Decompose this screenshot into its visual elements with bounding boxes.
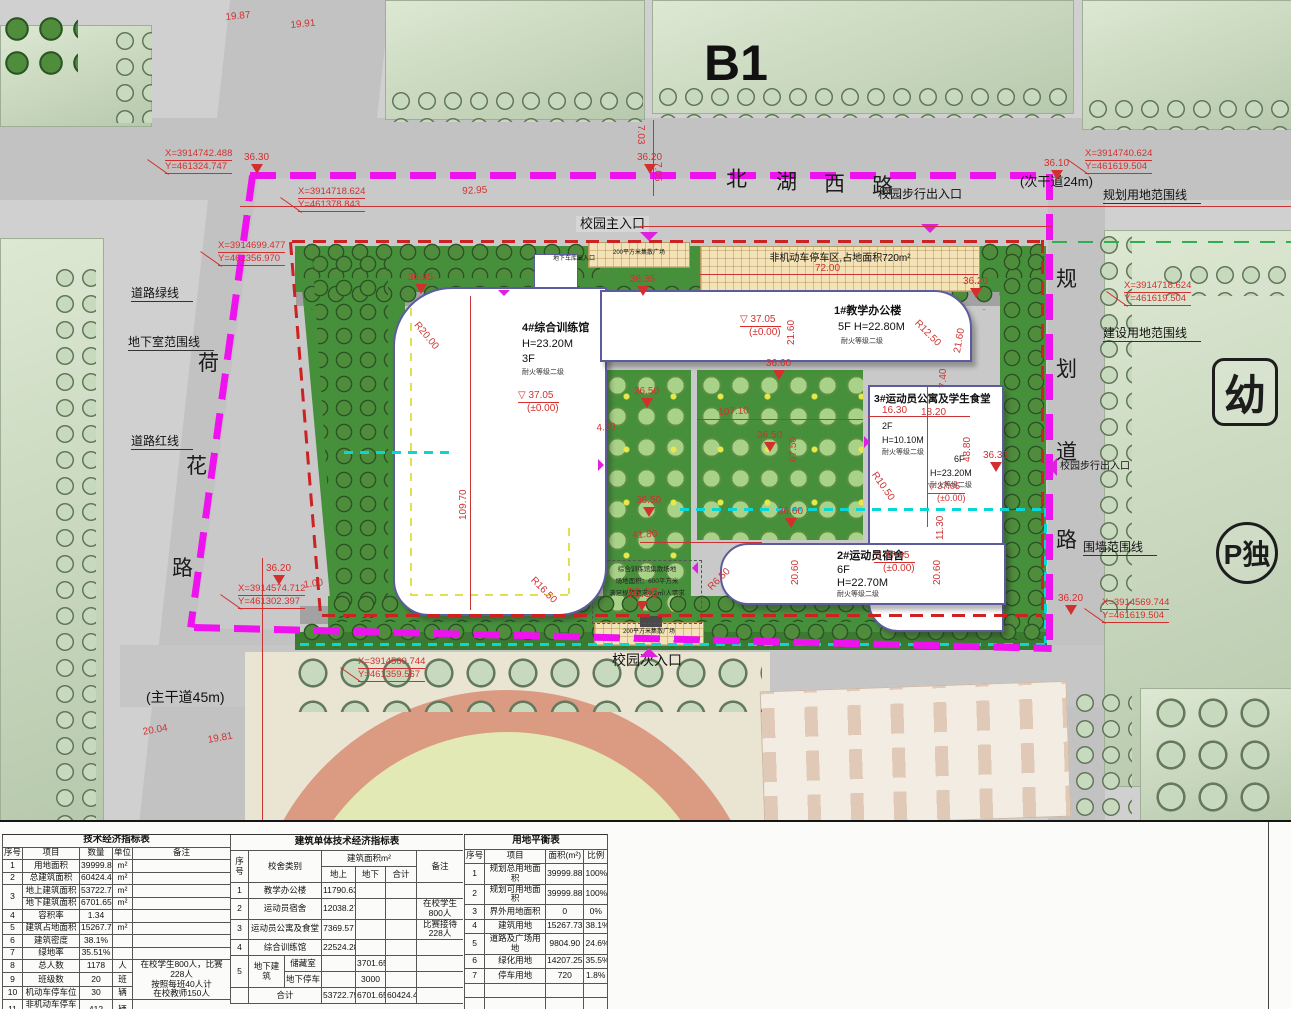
table-cell: 道路及广场用地: [485, 934, 546, 955]
dim-44: 20.60: [790, 560, 801, 585]
table-cell: [356, 883, 386, 899]
table-cell: 100%: [584, 864, 608, 885]
table-cell: 1178: [80, 960, 113, 973]
dim-26: 19.91: [290, 18, 316, 31]
table-cell: 地下建筑面积: [23, 897, 80, 910]
table-cell: 10: [3, 986, 23, 999]
table-cell: [417, 956, 464, 972]
rc-23: 道: [1056, 441, 1077, 464]
coordinate-7: X=3914569.744Y=461359.567: [358, 656, 425, 682]
table-cell: m²: [113, 897, 133, 910]
elev-57: 36.35: [630, 274, 655, 296]
table-cell: 校舍类别: [249, 851, 322, 883]
table-cell: 1: [231, 883, 249, 899]
tree-col: [1000, 250, 1044, 640]
garage-entrance-label: 地下车库出入口: [553, 256, 595, 263]
table-cell: 53722.75: [322, 988, 356, 1004]
table-cell: 20: [80, 973, 113, 986]
table-cell: [113, 947, 133, 960]
tree-row: [388, 88, 643, 122]
table-cell: 绿地率: [23, 947, 80, 960]
table-cell: 技术经济指标表: [3, 835, 231, 848]
table-cell: [417, 940, 464, 956]
table-cell: 地下建筑: [249, 956, 285, 988]
entr-76: [498, 290, 510, 302]
elev-55: 36.10: [1044, 158, 1069, 180]
planning-boundary-label: 规划用地范围线: [1103, 189, 1201, 204]
table-cell: 面积(m²): [546, 849, 584, 864]
table-cell: [546, 983, 584, 998]
dim-line-8: [653, 120, 654, 196]
table-cell: [386, 899, 417, 920]
table-cell: 合计: [249, 988, 322, 1004]
rc-18: 荷: [198, 352, 219, 375]
assembly-line2: 场地面积：600平方米: [593, 575, 701, 585]
table-cell: 地下: [356, 867, 386, 883]
tree-col: [52, 265, 96, 820]
entr-78: [686, 562, 698, 574]
table-cell: 3000: [356, 972, 386, 988]
dim-42: 48.80: [962, 437, 973, 462]
table-tech-indicators-table: 技术经济指标表序号项目数量单位备注1用地面积39999.88m²2总建筑面积60…: [2, 834, 230, 1009]
tree-col: [1072, 690, 1132, 820]
dim-31: 109.70: [458, 489, 469, 520]
table-cell: 5: [465, 934, 485, 955]
plaza-top-label: 200平方米集散广场: [613, 250, 665, 257]
table-cell: 7: [3, 947, 23, 960]
table-cell: [133, 897, 231, 910]
table-cell: 在校学生800人，比赛228人 按照每班40人计 在校教师150人: [133, 960, 231, 1000]
b3-6f-height: H=23.20M: [930, 468, 972, 478]
table-cell: 35.51%: [80, 947, 113, 960]
table-cell: [133, 860, 231, 873]
secondary-entrance-arrow: [640, 648, 658, 657]
table-cell: 用地面积: [23, 860, 80, 873]
dim-37: 21.60: [786, 320, 797, 345]
table-cell: 序号: [465, 849, 485, 864]
table-cell: [133, 1000, 231, 1009]
dim-40: 16.30: [882, 405, 907, 416]
table-cell: 2: [3, 872, 23, 885]
table-cell: 6: [465, 954, 485, 969]
tree-cluster: [0, 12, 78, 82]
entr-79: [598, 459, 610, 471]
rc-20: 路: [172, 557, 193, 580]
table-cell: 建筑用地: [485, 919, 546, 934]
tree-row: [112, 28, 152, 123]
table-cell: [485, 983, 546, 998]
table-cell: 5: [3, 922, 23, 935]
table-cell: 1.8%: [584, 969, 608, 984]
table-cell: 总建筑面积: [23, 872, 80, 885]
table-cell: 60424.40: [386, 988, 417, 1004]
coordinate-5: X=3914718.624Y=461619.504: [1124, 280, 1191, 306]
table-cell: 2: [465, 884, 485, 905]
parking-island-zone: P独: [1216, 522, 1278, 584]
table-cell: [322, 956, 356, 972]
elev-53: 36.30: [244, 152, 269, 174]
table-cell: [386, 940, 417, 956]
b1-spec: 5F H=22.80M: [838, 321, 905, 334]
table-cell: 53722.75: [80, 885, 113, 898]
table-cell: 容积率: [23, 910, 80, 923]
table-cell: [465, 998, 485, 1009]
table-cell: 建筑密度: [23, 935, 80, 948]
table-cell: [133, 872, 231, 885]
table-cell: 7: [465, 969, 485, 984]
table-land-balance: 用地平衡表序号项目面积(m²)比例1规划总用地面积39999.88100%2规划…: [464, 834, 608, 1009]
dim-line-6: [640, 226, 1052, 227]
rc-21: 规: [1056, 268, 1077, 291]
coordinate-1: X=3914718.624Y=461378.843: [298, 186, 365, 212]
table-cell: m²: [113, 885, 133, 898]
table-cell: [231, 988, 249, 1004]
table-cell: 2: [231, 899, 249, 920]
benchmark-b2: ▽ 37.05(±0.00): [874, 550, 915, 574]
coordinate-4: X=3914740.624Y=461619.504: [1085, 148, 1152, 174]
benchmark-b4: ▽ 37.05(±0.00): [518, 390, 559, 414]
table-cell: 0%: [584, 905, 608, 920]
table-cell: [386, 956, 417, 972]
table-cell: 规划可用地面积: [485, 884, 546, 905]
table-cell: 单位: [113, 847, 133, 860]
table-cell: 11: [3, 1000, 23, 1009]
table-cell: 4: [231, 940, 249, 956]
table-cell: 备注: [133, 847, 231, 860]
elev-60: 36.50: [634, 386, 659, 408]
dim-49: 41.80: [632, 529, 658, 541]
table-cell: 班: [113, 973, 133, 986]
table-cell: 9804.90: [546, 934, 584, 955]
table-cell: 12038.27: [322, 899, 356, 920]
table-cell: 合计: [386, 867, 417, 883]
table-cell: 项目: [23, 847, 80, 860]
basement-boundary-label: 地下室范围线: [128, 336, 214, 351]
table-cell: 30: [80, 986, 113, 999]
table-cell: 地下停车: [285, 972, 322, 988]
b1-fire: 耐火等级二级: [841, 338, 883, 346]
table-cell: 运动员公寓及食堂: [249, 919, 322, 940]
table-building-indicators-table: 建筑单体技术经济指标表序号校舍类别建筑面积m²备注地上地下合计1教学办公楼117…: [230, 834, 463, 1004]
title-panel: 技术经济指标表序号项目数量单位备注1用地面积39999.88m²2总建筑面积60…: [0, 820, 1291, 1009]
table-cell: 1: [3, 860, 23, 873]
b3-title: 3#运动员公寓及学生食堂: [874, 393, 991, 405]
tree-row: [1085, 96, 1291, 130]
construction-boundary-bottom: [322, 614, 1042, 617]
table-cell: 建筑占地面积: [23, 922, 80, 935]
table-cell: 总人数: [23, 960, 80, 973]
elev-59: 36.60: [766, 358, 791, 380]
parking-island-char: P独: [1224, 533, 1271, 573]
benchmark-b1: ▽ 37.05(±0.00): [740, 314, 781, 338]
assembly-line1: 综合训练馆集散场地: [593, 563, 701, 573]
table-cell: 序号: [231, 851, 249, 883]
table-cell: 5: [231, 956, 249, 988]
b4-title: 4#综合训练馆: [522, 322, 589, 335]
rc-16: 西: [824, 173, 845, 196]
b4-floors: 3F: [522, 353, 535, 366]
elev-62: 36.30: [983, 450, 1008, 472]
table-cell: [485, 998, 546, 1009]
table-cell: 15267.73: [546, 919, 584, 934]
dim-30: 72.00: [815, 263, 840, 274]
b1-title: 1#教学办公楼: [834, 305, 901, 318]
dim-line-7: [262, 558, 263, 820]
table-cell: [356, 919, 386, 940]
table-cell: 38.1%: [584, 919, 608, 934]
table-cell: 15267.73: [80, 922, 113, 935]
table-cell: [584, 983, 608, 998]
rc-22: 划: [1056, 358, 1077, 381]
rc-14: 北: [726, 168, 747, 191]
plaza-top: 200平方米集散广场: [588, 242, 690, 268]
b3-2f-fire: 耐火等级二级: [882, 449, 924, 457]
dim-47: 107.10: [718, 405, 749, 418]
table-cell: [417, 988, 464, 1004]
b4-height: H=23.20M: [522, 338, 573, 351]
wall-line-mid: [680, 508, 1046, 511]
elev-65: 36.20: [266, 563, 291, 585]
kindergarten-char: 幼: [1224, 362, 1266, 423]
table-cell: 39999.88: [546, 864, 584, 885]
main-entrance-label: 校园主入口: [576, 216, 649, 232]
kindergarten-zone: 幼: [1212, 358, 1278, 426]
dim-line-5: [240, 206, 1291, 207]
table-cell: 35.5%: [584, 954, 608, 969]
table-cell: 备注: [417, 851, 464, 883]
table-cell: 6: [3, 935, 23, 948]
coordinate-6: X=3914569.744Y=461619.504: [1102, 597, 1169, 623]
table-cell: 数量: [80, 847, 113, 860]
table-cell: 412: [80, 1000, 113, 1009]
tree-cluster: [1150, 692, 1280, 817]
b2-fire: 耐火等级二级: [837, 591, 879, 599]
dim-48: 67.50: [788, 437, 799, 462]
elev-56: 36.35: [408, 272, 433, 294]
table-cell: 39999.88: [80, 860, 113, 873]
parking-lot: [760, 681, 1072, 820]
walk-entrance-arrow-east: [1048, 458, 1057, 476]
table-cell: 人: [113, 960, 133, 973]
b3-2f-floors: 2F: [882, 421, 893, 431]
west-road-spec: (主干道45m): [146, 690, 225, 705]
table-cell: 14207.25: [546, 954, 584, 969]
table-cell: 辆: [113, 1000, 133, 1009]
table-cell: 停车用地: [485, 969, 546, 984]
table-cell: 比赛接待228人: [417, 919, 464, 940]
road-green-line: [1052, 241, 1291, 243]
table-cell: m²: [113, 922, 133, 935]
site-plan-map: 非机动车停车区,占地面积720m² 200平方米集散广场 200平方米集散广场 …: [0, 0, 1291, 820]
table-cell: 4: [465, 919, 485, 934]
table-cell: 界外用地面积: [485, 905, 546, 920]
table-cell: [133, 947, 231, 960]
panel-divider: [1268, 822, 1269, 1009]
table-cell: m²: [113, 860, 133, 873]
table-cell: [386, 972, 417, 988]
dim-39: 7.40: [938, 369, 949, 388]
basement-line-v2: [568, 528, 570, 594]
dim-line-3: [697, 419, 863, 420]
b3-2f-height: H=10.10M: [882, 435, 924, 445]
table-cell: [417, 883, 464, 899]
table-cell: 综合训练馆: [249, 940, 322, 956]
table-cell: [133, 935, 231, 948]
table-cell: 0: [546, 905, 584, 920]
rc-17: 路: [872, 175, 893, 198]
table-cell: 建筑面积m²: [322, 851, 417, 867]
table-cell: [465, 983, 485, 998]
construction-boundary-top: [292, 240, 1046, 243]
table-cell: 辆: [113, 986, 133, 999]
rc-19: 花: [186, 455, 207, 478]
table-cell: 24.6%: [584, 934, 608, 955]
benchmark-b3: ▽ 37.05(±0.00): [928, 482, 965, 504]
table-cell: 720: [546, 969, 584, 984]
dim-line-0: [470, 296, 471, 610]
table-cell: [113, 910, 133, 923]
entr-77: [864, 436, 876, 448]
table-cell: [546, 998, 584, 1009]
table-cell: 地上: [322, 867, 356, 883]
table-cell: 建筑单体技术经济指标表: [231, 835, 464, 851]
dim-27: 92.95: [462, 185, 488, 197]
table-cell: 规划总用地面积: [485, 864, 546, 885]
dim-28: 7.03: [635, 125, 646, 144]
table-cell: 在校学生800人: [417, 899, 464, 920]
table-cell: 项目: [485, 849, 546, 864]
table-cell: 3: [3, 885, 23, 910]
table-cell: 储藏室: [285, 956, 322, 972]
table-cell: 教学办公楼: [249, 883, 322, 899]
table-cell: 3: [465, 905, 485, 920]
table-cell: [356, 940, 386, 956]
table-cell: 3: [231, 919, 249, 940]
dim-25: 19.87: [225, 10, 251, 23]
rc-15: 湖: [776, 171, 797, 194]
table-cell: 100%: [584, 884, 608, 905]
table-cell: 比例: [584, 849, 608, 864]
coordinate-0: X=3914742.488Y=461324.747: [165, 148, 232, 174]
table-cell: 22524.28: [322, 940, 356, 956]
elev-54: 36.20: [637, 152, 662, 174]
road-green-line-label: 道路绿线: [131, 287, 193, 302]
table-cell: 4: [3, 910, 23, 923]
table-cell: 38.1%: [80, 935, 113, 948]
b2-floors: 6F: [837, 564, 850, 577]
table-cell: [133, 910, 231, 923]
road-red-line-label: 道路红线: [131, 435, 193, 450]
table-cell: 6701.65: [80, 897, 113, 910]
elev-63: 36.50: [636, 495, 661, 517]
district-label: B1: [704, 36, 768, 91]
elev-58: 36.20: [963, 276, 988, 298]
wall-boundary-label: 围墙范围线: [1083, 541, 1157, 556]
table-cell: [133, 922, 231, 935]
elev-61: 36.50: [757, 430, 782, 452]
elev-67: 36.20: [1058, 593, 1083, 615]
table-cell: 39999.88: [546, 884, 584, 905]
b4-fire: 耐火等级二级: [522, 369, 564, 377]
table-tech-indicators: 技术经济指标表序号项目数量单位备注1用地面积39999.88m²2总建筑面积60…: [2, 834, 230, 1009]
b2-height: H=22.70M: [837, 577, 888, 590]
table-cell: 绿化用地: [485, 954, 546, 969]
table-cell: 7369.57: [322, 919, 356, 940]
table-cell: [113, 935, 133, 948]
table-cell: 机动车停车位: [23, 986, 80, 999]
rc-24: 路: [1056, 529, 1077, 552]
building-2-dormitory: 2#运动员宿舍 6F H=22.70M 耐火等级二级: [720, 543, 1006, 605]
table-cell: 用地平衡表: [465, 835, 608, 850]
coordinate-3: X=3914574.712Y=461302.397: [238, 583, 305, 609]
table-cell: [322, 972, 356, 988]
table-cell: [133, 885, 231, 898]
table-cell: 1.34: [80, 910, 113, 923]
table-cell: 9: [3, 973, 23, 986]
table-cell: m²: [113, 872, 133, 885]
coordinate-2: X=3914699.477Y=461356.970: [218, 240, 285, 266]
dim-line-1: [700, 274, 978, 275]
table-cell: 6701.65: [356, 988, 386, 1004]
table-building-indicators: 建筑单体技术经济指标表序号校舍类别建筑面积m²备注地上地下合计1教学办公楼117…: [230, 834, 463, 1009]
dim-46: 4.00: [596, 421, 616, 434]
table-cell: [584, 998, 608, 1009]
table-cell: 60424.40: [80, 872, 113, 885]
main-entrance-arrow: [640, 232, 658, 241]
elev-66: 36.35: [626, 586, 659, 611]
table-cell: [356, 899, 386, 920]
table-cell: 运动员宿舍: [249, 899, 322, 920]
planning-boundary-right: [1046, 174, 1053, 650]
table-cell: 序号: [3, 847, 23, 860]
table-cell: 地上建筑面积: [23, 885, 80, 898]
table-cell: 班级数: [23, 973, 80, 986]
table-cell: [386, 883, 417, 899]
dim-line-2: [868, 416, 970, 417]
plan-sheet: 非机动车停车区,占地面积720m² 200平方米集散广场 200平方米集散广场 …: [0, 0, 1291, 1009]
construction-boundary-label: 建设用地范围线: [1103, 327, 1201, 342]
dim-45: 20.60: [932, 560, 943, 585]
elev-64: 36.60: [778, 506, 803, 528]
dim-line-4: [640, 542, 762, 543]
wall-line-left: [344, 451, 454, 454]
table-cell: 8: [3, 960, 23, 973]
table-cell: 1: [465, 864, 485, 885]
table-cell: 非机动车停车位: [23, 1000, 80, 1009]
table-land-balance-table: 用地平衡表序号项目面积(m²)比例1规划总用地面积39999.88100%2规划…: [464, 834, 608, 1009]
table-cell: [386, 919, 417, 940]
table-cell: 3701.65: [356, 956, 386, 972]
dim-43: 11.30: [935, 516, 946, 540]
table-cell: 11790.63: [322, 883, 356, 899]
